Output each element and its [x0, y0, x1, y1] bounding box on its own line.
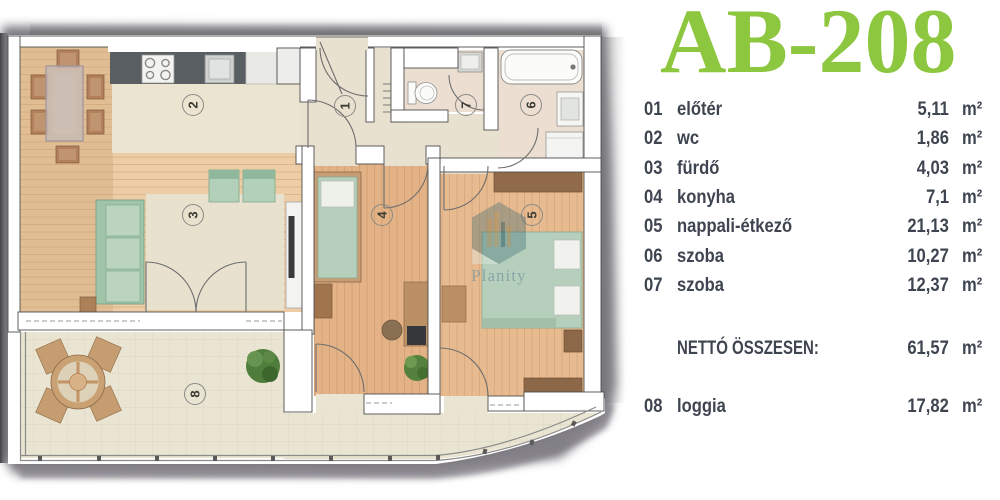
svg-text:7: 7 [459, 101, 474, 108]
svg-text:6: 6 [524, 101, 539, 108]
svg-text:8: 8 [188, 390, 203, 397]
svg-text:1: 1 [338, 102, 353, 109]
svg-text:Planity: Planity [471, 266, 526, 285]
svg-text:5: 5 [525, 211, 540, 218]
svg-text:2: 2 [186, 101, 201, 108]
svg-text:3: 3 [186, 211, 201, 218]
svg-text:4: 4 [375, 211, 390, 219]
